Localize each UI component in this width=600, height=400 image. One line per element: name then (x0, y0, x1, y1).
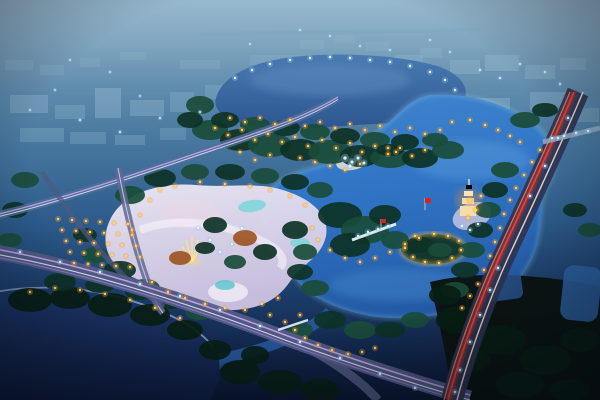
park-night-rendering (0, 0, 600, 400)
vignette-overlay (0, 0, 600, 400)
scene-svg (0, 0, 600, 400)
